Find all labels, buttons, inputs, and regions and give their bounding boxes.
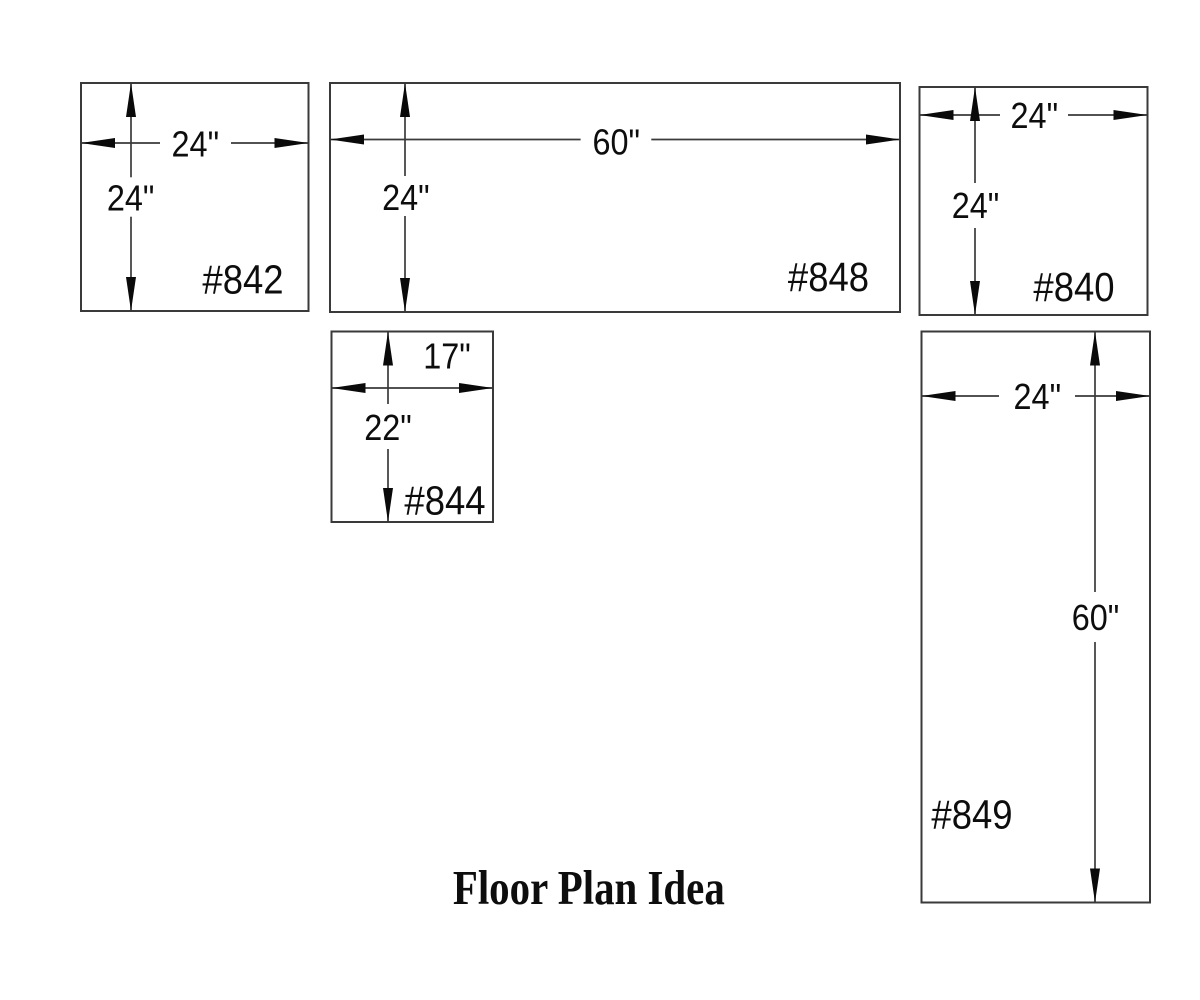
svg-text:#840: #840 [1033, 265, 1114, 310]
svg-text:#849: #849 [931, 793, 1012, 838]
svg-text:24": 24" [382, 178, 430, 218]
svg-text:24": 24" [1014, 377, 1062, 417]
svg-text:#842: #842 [202, 258, 283, 303]
svg-text:22": 22" [364, 408, 412, 448]
svg-text:60": 60" [592, 123, 640, 163]
svg-text:60": 60" [1072, 598, 1120, 638]
svg-text:Floor Plan Idea: Floor Plan Idea [453, 860, 725, 914]
svg-text:24": 24" [172, 125, 220, 165]
svg-text:17": 17" [423, 337, 471, 377]
svg-text:24": 24" [952, 186, 1000, 226]
svg-text:24": 24" [1011, 96, 1059, 136]
svg-text:24": 24" [107, 179, 155, 219]
svg-text:#844: #844 [404, 479, 485, 524]
svg-text:#848: #848 [788, 255, 869, 300]
